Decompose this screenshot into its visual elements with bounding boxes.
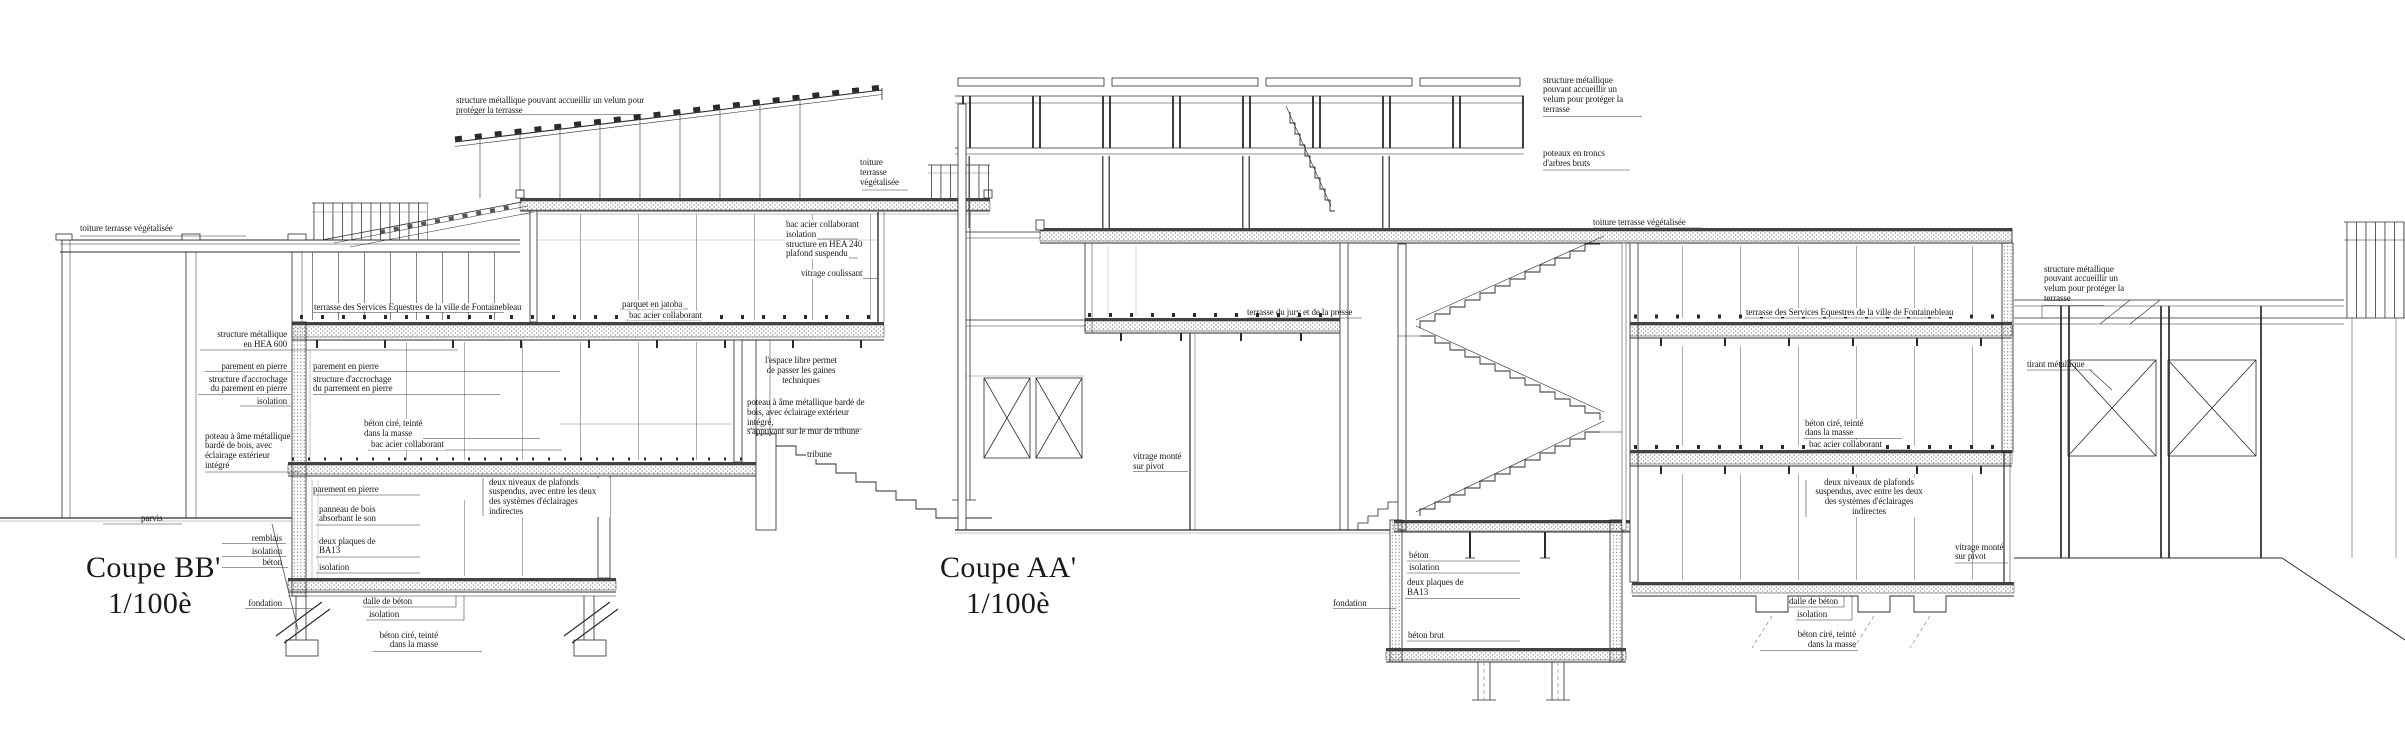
label-bb-espace-libre: l'espace libre permet de passer les gain…: [758, 356, 844, 385]
label-bb-poteau-tribune: poteau à âme métallique bardé de bois, a…: [747, 398, 875, 437]
drawing-canvas: toiture terrasse végétalisée structure m…: [0, 0, 2405, 749]
label-bb-beton-sol: béton: [226, 558, 282, 568]
label-bb-plafonds: deux niveaux de plafonds suspendus, avec…: [488, 478, 610, 517]
section-aa-drawing: [955, 78, 2405, 700]
label-bb-beton-cire-bas: béton ciré, teinté dans la masse: [340, 631, 438, 651]
label-bb-accrochage-int: structure d'accrochage du parrement en p…: [313, 375, 393, 395]
label-bb-bac-mid: bac acier collaborant: [370, 440, 445, 450]
label-bb-isolation-bas: isolation: [319, 563, 349, 573]
label-bb-remblais: remblais: [226, 534, 282, 544]
label-bb-fondation: fondation: [226, 599, 282, 609]
label-bb-hea600: structure métallique en HEA 600: [187, 330, 287, 350]
label-bb-parement-bas: parement en pierre: [313, 485, 379, 495]
label-bb-parvis: parvis: [141, 514, 162, 524]
label-bb-isolation-wall: isolation: [187, 397, 287, 407]
label-bb-ba13: deux plaques de BA13: [319, 537, 375, 557]
label-bb-velum: structure métallique pouvant accueillir …: [456, 96, 676, 116]
label-bb-terrasse-services: terrasse des Services Equestres de la vi…: [313, 303, 522, 313]
label-aa-ba13: deux plaques de BA13: [1407, 578, 1463, 598]
label-aa-toiture: toiture terrasse végétalisée: [1593, 218, 1686, 228]
label-aa-plafonds: deux niveaux de plafonds suspendus, avec…: [1810, 478, 1928, 517]
section-bb-scale: 1/100è: [86, 587, 214, 621]
label-aa-tirant: tirant métallique: [2027, 360, 2085, 370]
label-bb-parquet: parquet en jatoba: [621, 300, 683, 310]
label-aa-vitrage-droit: vitrage monté sur pivot: [1955, 543, 2003, 563]
label-aa-beton: béton: [1409, 551, 1429, 561]
section-aa-scale: 1/100è: [940, 587, 1076, 621]
label-bb-isolation-dalle: isolation: [369, 610, 399, 620]
label-aa-isolation-mur: isolation: [1409, 563, 1439, 573]
label-aa-beton-brut: béton brut: [1408, 631, 1444, 641]
label-bb-plafond: plafond suspendu: [785, 249, 849, 259]
label-aa-poteaux-troncs: poteaux en troncs d'arbres bruts: [1543, 149, 1605, 169]
label-aa-isolation-dalle: isolation: [1797, 610, 1827, 620]
label-aa-beton-cire: béton ciré, teinté dans la masse: [1804, 419, 1864, 439]
label-bb-accrochage-ext: structure d'accrochage du parement en pi…: [180, 375, 287, 395]
label-bb-vitrage-coulissant: vitrage coulissant: [800, 269, 863, 279]
label-aa-bac-mid: bac acier collaborant: [1808, 440, 1883, 450]
label-bb-beton-cire: béton ciré, teinté dans la masse: [363, 419, 423, 439]
label-aa-terrasse-services: terrasse des Services Equestres de la vi…: [1745, 308, 1954, 318]
label-bb-poteau: poteau à âme métallique bardé de bois, a…: [205, 432, 290, 471]
label-aa-velum-haut: structure métallique pouvant accueillir …: [1543, 76, 1623, 115]
label-aa-terrasse-jury: terrasse du jury et de la presse: [1247, 308, 1352, 318]
label-aa-dalle: dalle de béton: [1789, 597, 1838, 607]
label-bb-bac-parquet: bac acier collaborant: [628, 311, 703, 321]
label-bb-isolation-sol: isolation: [226, 547, 282, 557]
label-bb-parement-int: parement en pierre: [313, 362, 379, 372]
section-aa-title: Coupe AA': [940, 551, 1076, 585]
label-bb-parement-ext: parement en pierre: [187, 362, 287, 372]
label-bb-dalle: dalle de béton: [363, 597, 412, 607]
label-aa-velum-droit: structure métallique pouvant accueillir …: [2044, 265, 2124, 304]
label-bb-tribune: tribune: [806, 450, 833, 460]
label-aa-fondation: fondation: [1333, 599, 1367, 609]
label-aa-beton-cire-bas: béton ciré, teinté dans la masse: [1764, 630, 1856, 650]
label-bb-toiture-right: toiture terrasse végétalisée: [860, 158, 914, 187]
label-bb-toiture-left: toiture terrasse végétalisée: [80, 224, 173, 234]
section-bb-title: Coupe BB': [86, 551, 214, 585]
label-bb-panneau-bois: panneau de bois absorbant le son: [319, 505, 376, 525]
label-aa-vitrage-gauche: vitrage monté sur pivot: [1133, 452, 1181, 472]
